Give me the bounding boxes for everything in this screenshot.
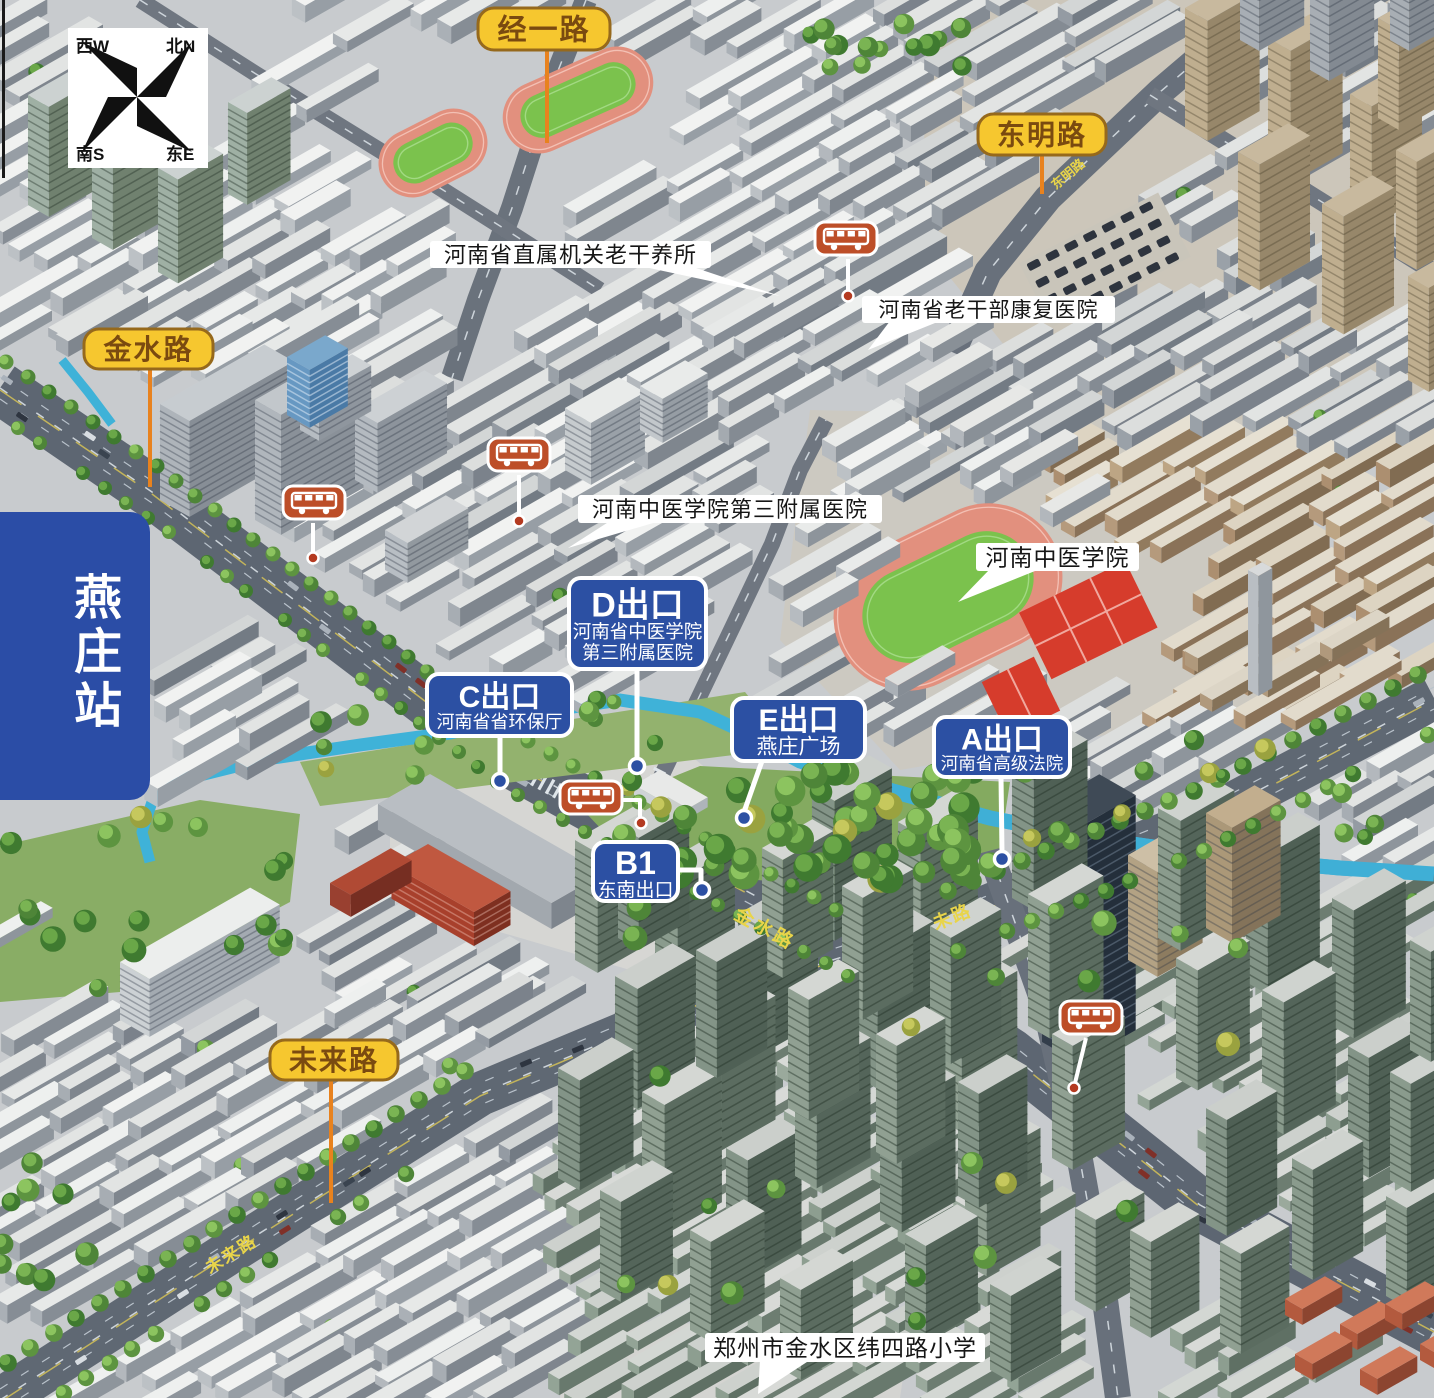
svg-text:E出口: E出口 xyxy=(758,704,838,737)
svg-text:D出口: D出口 xyxy=(591,587,684,625)
svg-text:燕: 燕 xyxy=(74,572,122,625)
svg-text:B1: B1 xyxy=(615,845,656,881)
svg-text:河南省直属机关老干养所: 河南省直属机关老干养所 xyxy=(444,242,697,267)
svg-text:未来路: 未来路 xyxy=(289,1045,379,1076)
svg-text:河南中医学院: 河南中医学院 xyxy=(986,544,1130,570)
svg-text:河南省老干部康复医院: 河南省老干部康复医院 xyxy=(879,299,1099,322)
svg-text:第三附属医院: 第三附属医院 xyxy=(582,642,693,663)
svg-text:南S: 南S xyxy=(76,144,104,164)
svg-text:西W: 西W xyxy=(76,37,110,56)
svg-text:庄: 庄 xyxy=(74,626,122,679)
svg-text:河南省高级法院: 河南省高级法院 xyxy=(941,754,1064,774)
svg-text:河南省省环保厅: 河南省省环保厅 xyxy=(437,712,563,732)
svg-text:东南出口: 东南出口 xyxy=(597,879,673,901)
svg-text:A出口: A出口 xyxy=(961,724,1043,757)
svg-text:河南省中医学院: 河南省中医学院 xyxy=(573,621,703,642)
svg-text:经一路: 经一路 xyxy=(497,12,590,46)
svg-text:北N: 北N xyxy=(166,37,195,56)
svg-text:河南中医学院第三附属医院: 河南中医学院第三附属医院 xyxy=(592,497,868,522)
svg-text:站: 站 xyxy=(74,680,122,733)
svg-text:金水路: 金水路 xyxy=(102,333,193,365)
svg-text:燕庄广场: 燕庄广场 xyxy=(757,736,841,759)
svg-text:郑州市金水区纬四路小学: 郑州市金水区纬四路小学 xyxy=(713,1335,977,1361)
svg-text:东明路: 东明路 xyxy=(997,119,1087,151)
svg-text:C出口: C出口 xyxy=(459,681,541,714)
svg-text:东E: 东E xyxy=(166,144,194,164)
